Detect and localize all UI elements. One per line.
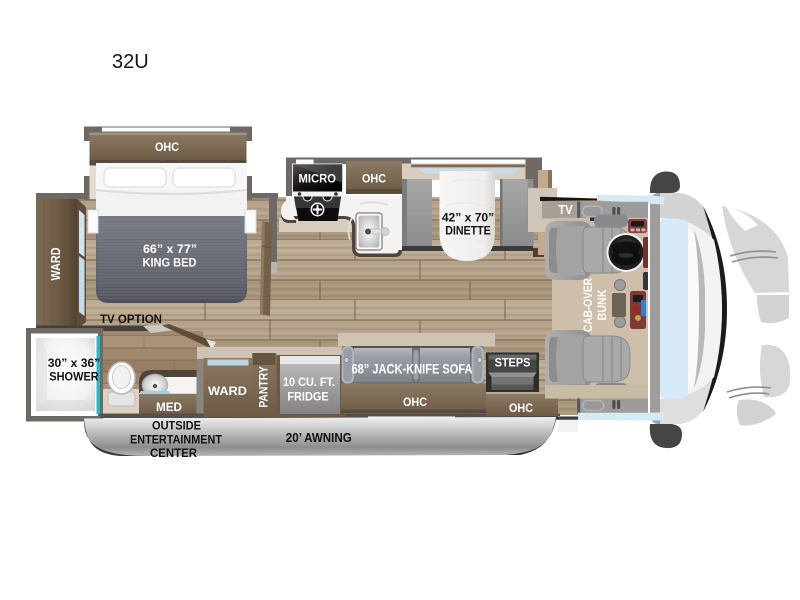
svg-text:OHC: OHC <box>509 403 533 415</box>
svg-text:DINETTE: DINETTE <box>445 225 491 237</box>
svg-text:10 CU. FT.: 10 CU. FT. <box>283 377 335 389</box>
svg-text:STEPS: STEPS <box>495 358 531 370</box>
svg-text:OHC: OHC <box>403 397 427 409</box>
svg-text:20’ AWNING: 20’ AWNING <box>286 431 352 445</box>
svg-text:PANTRY: PANTRY <box>257 366 271 408</box>
svg-text:OHC: OHC <box>155 142 179 154</box>
svg-text:CAB-OVER: CAB-OVER <box>581 278 595 332</box>
svg-text:OUTSIDE: OUTSIDE <box>152 419 201 433</box>
svg-text:ENTERTAINMENT: ENTERTAINMENT <box>130 433 223 447</box>
svg-text:42” x 70”: 42” x 70” <box>442 211 494 225</box>
svg-text:TV OPTION: TV OPTION <box>100 314 162 326</box>
svg-text:BUNK: BUNK <box>595 289 609 320</box>
svg-text:68” JACK-KNIFE SOFA: 68” JACK-KNIFE SOFA <box>352 361 473 377</box>
svg-text:MICRO: MICRO <box>299 174 337 186</box>
svg-text:CENTER: CENTER <box>150 446 197 460</box>
svg-text:WARD: WARD <box>208 384 247 398</box>
svg-text:KING BED: KING BED <box>143 256 197 270</box>
svg-text:OHC: OHC <box>362 174 386 186</box>
svg-text:WARD: WARD <box>49 248 63 281</box>
svg-text:32U: 32U <box>112 51 149 73</box>
svg-text:FRIDGE: FRIDGE <box>287 390 328 404</box>
svg-text:TV: TV <box>558 203 573 217</box>
svg-text:30” x 36”: 30” x 36” <box>48 356 101 370</box>
svg-text:66” x 77”: 66” x 77” <box>143 242 197 256</box>
svg-text:SHOWER: SHOWER <box>49 372 99 384</box>
svg-text:MED: MED <box>156 402 182 414</box>
